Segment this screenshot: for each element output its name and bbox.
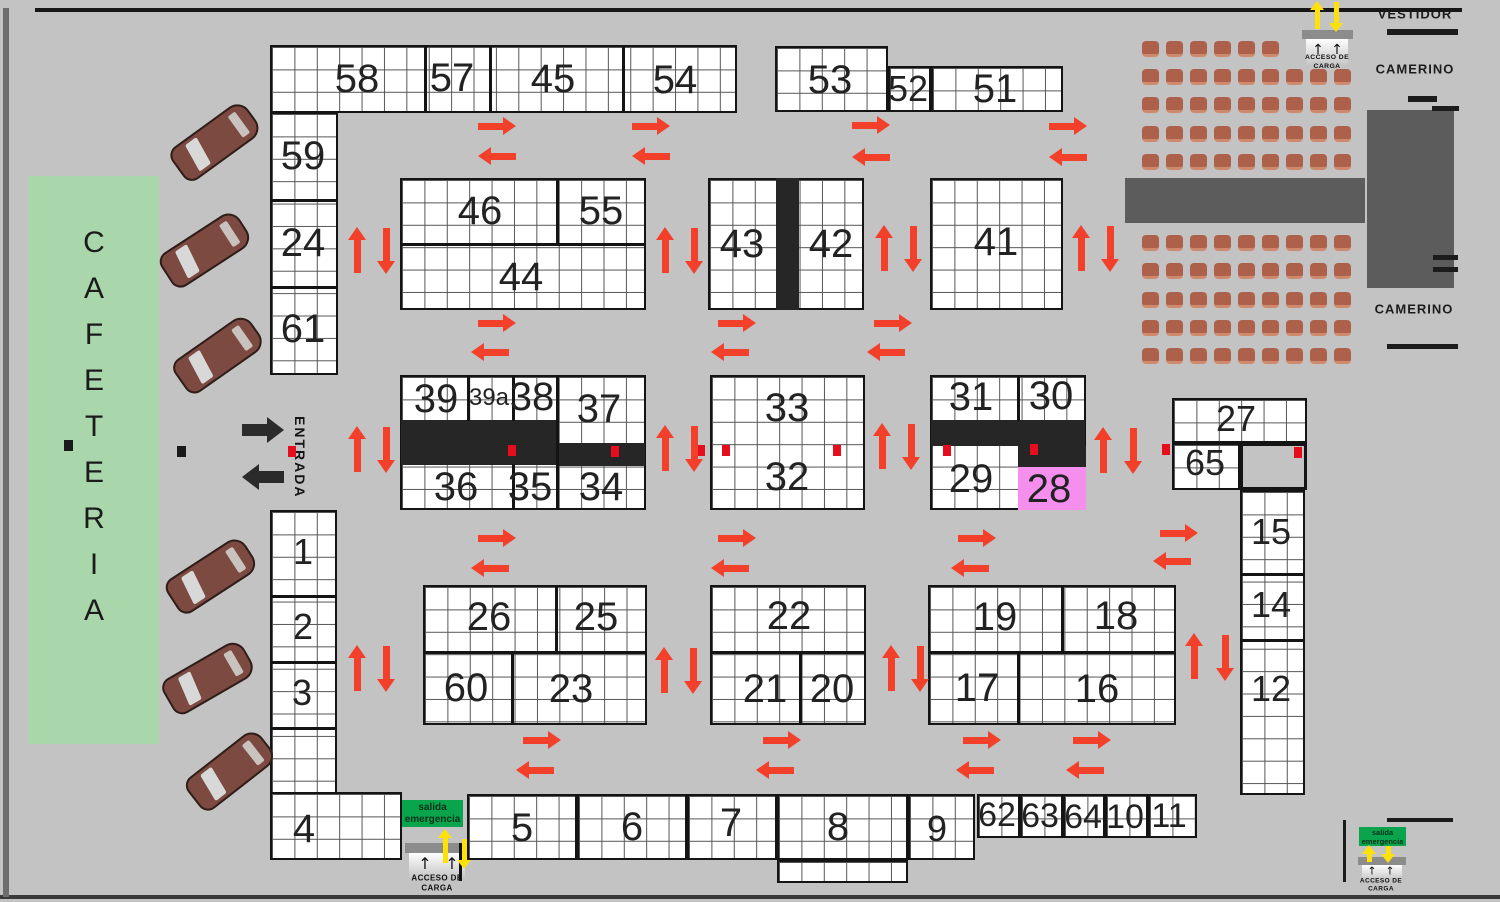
- flow-arrow-down-head: [1101, 259, 1119, 272]
- stall-label-51: 51: [973, 69, 1018, 109]
- stall-divider-line: [270, 286, 338, 289]
- car-windshield: [181, 570, 206, 605]
- flow-arrow-left: [1166, 558, 1191, 565]
- wall-line: [1433, 255, 1458, 260]
- stall-label-3: 3: [292, 675, 312, 711]
- chair-icon: [1334, 97, 1351, 113]
- flow-arrow-down: [1386, 846, 1391, 854]
- flow-arrow-up-head: [873, 423, 891, 436]
- stall-label-19: 19: [973, 597, 1018, 637]
- chair-icon: [1310, 126, 1327, 142]
- chair-icon: [1214, 263, 1231, 279]
- stall-label-32: 32: [765, 457, 810, 497]
- black-marker: [177, 446, 186, 457]
- flow-arrow-down: [1222, 635, 1229, 668]
- flow-arrow-right-head: [877, 116, 890, 134]
- stall-label-27: 27: [1216, 401, 1256, 437]
- chair-icon: [1190, 41, 1207, 57]
- stall-label-57: 57: [430, 58, 475, 98]
- chair-icon: [1262, 292, 1279, 308]
- flow-arrow-down-head: [1381, 854, 1395, 863]
- car-rear-window: [231, 325, 253, 351]
- exhibition-floor-plan: CAFETERIA ENTRADA VESTIDOR CAMERINO CAME…: [0, 0, 1500, 902]
- red-marker: [722, 445, 730, 456]
- flow-arrow-up-head: [348, 645, 366, 658]
- stall-label-21: 21: [743, 669, 788, 709]
- flow-arrow-up-head: [348, 426, 366, 439]
- chair-icon: [1238, 126, 1255, 142]
- chair-icon: [1334, 348, 1351, 364]
- stall-label-6: 6: [621, 807, 643, 847]
- stall-divider-line: [1017, 651, 1020, 725]
- chair-icon: [1214, 154, 1231, 170]
- chair-icon: [1310, 154, 1327, 170]
- wall-line: [1387, 818, 1453, 822]
- car-rear-window: [223, 650, 244, 677]
- flow-arrow-down-head: [1329, 23, 1343, 32]
- stall-label-29: 29: [949, 459, 994, 499]
- flow-arrow-left: [724, 565, 749, 572]
- cafeteria-label: CAFETERIA: [77, 226, 111, 640]
- stall-divider-line: [1240, 573, 1305, 576]
- stall-divider-line: [270, 661, 337, 664]
- stall-divider-line: [511, 651, 514, 725]
- chair-icon: [1190, 154, 1207, 170]
- flow-arrow-down: [383, 228, 390, 261]
- chair-icon: [1166, 154, 1183, 170]
- flow-arrow-right-head: [988, 731, 1001, 749]
- flow-arrow-up: [662, 438, 669, 471]
- stall-label-22: 22: [767, 596, 812, 636]
- chair-icon: [1238, 263, 1255, 279]
- chair-icon: [1262, 154, 1279, 170]
- chair-icon: [1334, 263, 1351, 279]
- flow-arrow-right: [478, 123, 503, 130]
- stall-label-53: 53: [808, 60, 853, 100]
- stall-label-37: 37: [577, 389, 622, 429]
- chair-icon: [1214, 320, 1231, 336]
- flow-arrow-left-head: [471, 559, 484, 577]
- wall-line: [1343, 820, 1346, 882]
- flow-arrow-up: [354, 439, 361, 472]
- chair-icon: [1310, 235, 1327, 251]
- stall-label-35: 35: [508, 467, 553, 507]
- flow-arrow-up-head: [348, 227, 366, 240]
- car-rear-window: [225, 547, 247, 574]
- flow-arrow-up: [1191, 646, 1198, 679]
- red-marker: [508, 445, 516, 456]
- chair-icon: [1286, 235, 1303, 251]
- chair-icon: [1286, 348, 1303, 364]
- chair-icon: [1238, 348, 1255, 364]
- ramp-arrow-icon: ↑: [418, 856, 431, 872]
- flow-arrow-up: [881, 238, 888, 271]
- chair-icon: [1166, 292, 1183, 308]
- flow-arrow-up: [1078, 238, 1085, 271]
- flow-arrow-down-head: [902, 457, 920, 470]
- flow-arrow-up: [888, 658, 895, 691]
- chair-icon: [1262, 97, 1279, 113]
- chair-icon: [1214, 348, 1231, 364]
- chair-icon: [1166, 69, 1183, 85]
- stall-label-36: 36: [434, 467, 479, 507]
- red-marker: [1162, 444, 1170, 455]
- black-wall-bar: [776, 178, 799, 310]
- stall-label-23: 23: [549, 669, 594, 709]
- flow-arrow-down-head: [377, 261, 395, 274]
- stall-label-61: 61: [281, 309, 326, 349]
- stall-label-42: 42: [809, 224, 854, 264]
- stall-label-39a: 39a: [469, 386, 509, 410]
- flow-arrow-up: [354, 658, 361, 691]
- chair-icon: [1190, 126, 1207, 142]
- chair-icon: [1190, 292, 1207, 308]
- stall-divider-line: [556, 375, 559, 510]
- chair-icon: [1238, 154, 1255, 170]
- chair-icon: [1190, 69, 1207, 85]
- stall-label-46: 46: [458, 191, 503, 231]
- flow-arrow-left-head: [852, 148, 865, 166]
- car-windshield: [175, 244, 200, 279]
- chair-icon: [1166, 235, 1183, 251]
- stall-label-12: 12: [1251, 671, 1291, 707]
- flow-arrow-down: [917, 646, 924, 679]
- flow-arrow-right-head: [899, 314, 912, 332]
- flow-arrow-left: [1062, 154, 1087, 161]
- flow-arrow-right: [874, 320, 899, 327]
- stall-label-9: 9: [927, 811, 947, 847]
- flow-arrow-down: [1107, 226, 1114, 259]
- stall-label-64: 64: [1064, 800, 1102, 834]
- chair-icon: [1142, 235, 1159, 251]
- chair-icon: [1166, 263, 1183, 279]
- chair-icon: [1142, 126, 1159, 142]
- loading-access-label: ACCESO DECARGA: [411, 874, 462, 895]
- chair-icon: [1214, 97, 1231, 113]
- stall-label-54: 54: [653, 60, 698, 100]
- stall-label-2: 2: [293, 609, 313, 645]
- parked-car: [169, 312, 267, 398]
- chair-icon: [1334, 292, 1351, 308]
- stall-divider-line: [556, 178, 559, 245]
- exit-sign-line2: emergencia: [402, 814, 463, 826]
- stall-label-14: 14: [1251, 587, 1291, 623]
- car-rear-window: [228, 111, 251, 137]
- flow-arrow-up: [354, 240, 361, 273]
- stall-label-41: 41: [974, 222, 1019, 262]
- wall-line: [1387, 344, 1458, 349]
- chair-icon: [1142, 97, 1159, 113]
- chair-icon: [1238, 69, 1255, 85]
- loading-access-label: ACCESO DECARGA: [1360, 878, 1402, 895]
- flow-arrow-up: [443, 838, 448, 863]
- flow-arrow-right: [718, 320, 743, 327]
- entrance-label: ENTRADA: [292, 416, 308, 498]
- chair-icon: [1166, 320, 1183, 336]
- stall-label-17: 17: [955, 668, 1000, 708]
- chair-icon: [1262, 69, 1279, 85]
- flow-arrow-down-head: [685, 459, 703, 472]
- flow-arrow-down-head: [685, 261, 703, 274]
- chair-icon: [1262, 348, 1279, 364]
- chair-icon: [1166, 97, 1183, 113]
- flow-arrow-left-head: [478, 147, 491, 165]
- red-marker: [697, 445, 705, 456]
- flow-arrow-down-head: [1216, 668, 1234, 681]
- chair-icon: [1214, 126, 1231, 142]
- flow-arrow-left-head: [956, 761, 969, 779]
- wall-line: [3, 8, 9, 897]
- black-wall-bar: [931, 420, 1085, 446]
- stall-label-43: 43: [720, 224, 765, 264]
- red-marker: [1030, 444, 1038, 455]
- flow-arrow-left: [724, 349, 749, 356]
- chair-icon: [1310, 97, 1327, 113]
- flow-arrow-left-head: [516, 761, 529, 779]
- flow-arrow-up: [661, 660, 668, 693]
- flow-arrow-left-head: [711, 343, 724, 361]
- chair-icon: [1310, 320, 1327, 336]
- red-marker: [288, 446, 296, 457]
- black-marker: [64, 440, 73, 451]
- stall-label-28: 28: [1027, 469, 1072, 509]
- black-wall-bar: [401, 420, 557, 465]
- wall-line: [1408, 96, 1437, 102]
- stall-label-33: 33: [765, 388, 810, 428]
- flow-arrow-down: [691, 426, 698, 459]
- flow-arrow-up-head: [1310, 1, 1324, 10]
- chair-icon: [1286, 126, 1303, 142]
- flow-arrow-left: [491, 153, 516, 160]
- chair-icon: [1214, 235, 1231, 251]
- chair-icon: [1286, 263, 1303, 279]
- stall-divider-line: [1017, 375, 1020, 421]
- stall-divider-line: [423, 651, 647, 654]
- flow-arrow-left: [529, 767, 554, 774]
- flow-arrow-left: [645, 153, 670, 160]
- flow-arrow-left-head: [1153, 552, 1166, 570]
- chair-icon: [1286, 97, 1303, 113]
- stall-label-34: 34: [579, 467, 624, 507]
- stall-label-30: 30: [1029, 376, 1074, 416]
- flow-arrow-right-head: [1185, 524, 1198, 542]
- flow-arrow-left-head: [711, 559, 724, 577]
- chair-icon: [1142, 69, 1159, 85]
- stall-label-11: 11: [1151, 799, 1186, 833]
- flow-arrow-left: [865, 154, 890, 161]
- flow-arrow-down: [1130, 428, 1137, 461]
- chair-icon: [1238, 292, 1255, 308]
- wall-line: [1432, 106, 1459, 111]
- flow-arrow-right: [1160, 530, 1185, 537]
- red-marker: [1294, 447, 1302, 458]
- cafeteria-area: CAFETERIA: [28, 176, 159, 744]
- chair-icon: [1190, 235, 1207, 251]
- stall-divider-line: [928, 651, 1176, 654]
- parked-car: [166, 99, 264, 185]
- parked-car: [158, 638, 258, 719]
- flow-arrow-left-head: [756, 761, 769, 779]
- stall-label-7: 7: [720, 803, 742, 843]
- red-marker: [943, 445, 951, 456]
- flow-arrow-up-head: [1094, 427, 1112, 440]
- stall-block: [777, 860, 908, 883]
- stall-divider-line: [270, 595, 337, 598]
- flow-arrow-up-head: [1362, 845, 1376, 854]
- wall-line: [1433, 267, 1458, 272]
- emergency-exit-sign-left: salida emergencia: [402, 800, 463, 827]
- chair-icon: [1262, 41, 1279, 57]
- stall-block: [270, 792, 402, 860]
- flow-arrow-right: [632, 123, 657, 130]
- stall-divider-line: [799, 651, 802, 725]
- flow-arrow-right-head: [788, 731, 801, 749]
- chair-icon: [1310, 348, 1327, 364]
- flow-arrow-right: [478, 320, 503, 327]
- flow-arrow-down-head: [377, 460, 395, 473]
- stall-label-44: 44: [499, 257, 544, 297]
- chair-icon: [1166, 41, 1183, 57]
- flow-arrow-left-head: [632, 147, 645, 165]
- parked-car: [162, 534, 261, 618]
- stall-label-25: 25: [574, 597, 619, 637]
- chair-icon: [1334, 235, 1351, 251]
- stall-label-58: 58: [335, 59, 380, 99]
- flow-arrow-left: [969, 767, 994, 774]
- chair-icon: [1262, 320, 1279, 336]
- exit-sign-line1: salida: [1359, 828, 1406, 837]
- stall-label-60: 60: [444, 668, 489, 708]
- flow-arrow-down: [690, 648, 697, 681]
- stall-divider-line: [489, 45, 492, 113]
- ramp-arrow-icon: ↑: [1367, 866, 1376, 877]
- chair-icon: [1286, 69, 1303, 85]
- flow-arrow-up-head: [655, 647, 673, 660]
- flow-arrow-right-head: [503, 529, 516, 547]
- flow-arrow-right: [242, 424, 267, 436]
- chair-icon: [1310, 69, 1327, 85]
- stall-divider-line: [424, 45, 427, 113]
- stall-divider-line: [270, 727, 337, 730]
- flow-arrow-up: [1315, 10, 1320, 29]
- stall-label-8: 8: [827, 807, 849, 847]
- flow-arrow-right-head: [1098, 731, 1111, 749]
- stall-label-39: 39: [414, 379, 459, 419]
- chair-icon: [1190, 263, 1207, 279]
- chair-icon: [1190, 320, 1207, 336]
- flow-arrow-right-head: [743, 314, 756, 332]
- flow-arrow-down: [910, 226, 917, 259]
- chair-icon: [1214, 69, 1231, 85]
- stall-label-24: 24: [281, 223, 326, 263]
- flow-arrow-left: [964, 565, 989, 572]
- wall-line: [1387, 29, 1458, 35]
- flow-arrow-left: [484, 565, 509, 572]
- chair-icon: [1310, 263, 1327, 279]
- flow-arrow-down: [908, 424, 915, 457]
- flow-arrow-left: [259, 471, 284, 483]
- flow-arrow-left-head: [242, 464, 259, 490]
- flow-arrow-down-head: [684, 681, 702, 694]
- flow-arrow-left-head: [1066, 761, 1079, 779]
- chair-icon: [1238, 41, 1255, 57]
- chair-icon: [1262, 126, 1279, 142]
- flow-arrow-left: [880, 349, 905, 356]
- flow-arrow-up-head: [656, 227, 674, 240]
- car-rear-window: [242, 740, 265, 766]
- stall-divider-line: [710, 651, 866, 654]
- flow-arrow-right: [523, 737, 548, 744]
- stage-block: [1367, 110, 1454, 288]
- flow-arrow-up-head: [1072, 225, 1090, 238]
- red-marker: [611, 446, 619, 457]
- flow-arrow-up: [1100, 440, 1107, 473]
- flow-arrow-right: [958, 535, 983, 542]
- flow-arrow-right-head: [548, 731, 561, 749]
- stall-label-15: 15: [1251, 514, 1291, 550]
- chair-icon: [1142, 348, 1159, 364]
- stall-label-65: 65: [1185, 445, 1225, 481]
- stall-label-31: 31: [949, 377, 994, 417]
- black-wall-bar: [557, 443, 645, 466]
- chair-icon: [1334, 154, 1351, 170]
- stage-block: [1125, 178, 1365, 223]
- flow-arrow-up: [662, 240, 669, 273]
- chair-icon: [1286, 154, 1303, 170]
- red-marker: [833, 445, 841, 456]
- flow-arrow-down: [1334, 2, 1339, 23]
- stall-label-62: 62: [978, 798, 1016, 832]
- flow-arrow-left: [1079, 767, 1104, 774]
- flow-arrow-up-head: [882, 645, 900, 658]
- chair-icon: [1238, 97, 1255, 113]
- car-windshield: [200, 767, 227, 802]
- flow-arrow-up-head: [875, 225, 893, 238]
- flow-arrow-down-head: [1124, 461, 1142, 474]
- stall-divider-line: [555, 585, 558, 652]
- chair-icon: [1286, 320, 1303, 336]
- black-wall-bar: [1018, 446, 1086, 467]
- flow-arrow-right: [478, 535, 503, 542]
- chair-icon: [1190, 348, 1207, 364]
- chair-icon: [1214, 41, 1231, 57]
- stall-divider-line: [1061, 585, 1064, 652]
- flow-arrow-up-head: [438, 829, 452, 838]
- chair-icon: [1166, 126, 1183, 142]
- flow-arrow-left-head: [1049, 148, 1062, 166]
- stall-label-5: 5: [511, 808, 533, 848]
- flow-arrow-left: [769, 767, 794, 774]
- stall-label-59: 59: [281, 136, 326, 176]
- camerino-bottom-label: CAMERINO: [1375, 302, 1454, 317]
- stall-label-52: 52: [888, 71, 928, 107]
- stall-label-20: 20: [810, 669, 855, 709]
- chair-icon: [1142, 292, 1159, 308]
- flow-arrow-right-head: [503, 117, 516, 135]
- chair-icon: [1334, 320, 1351, 336]
- flow-arrow-right: [718, 535, 743, 542]
- camerino-top-label: CAMERINO: [1376, 62, 1455, 77]
- chair-icon: [1334, 69, 1351, 85]
- flow-arrow-down-head: [911, 679, 929, 692]
- flow-arrow-right-head: [983, 529, 996, 547]
- flow-arrow-up-head: [656, 425, 674, 438]
- chair-icon: [1214, 292, 1231, 308]
- chair-icon: [1142, 154, 1159, 170]
- stall-label-1: 1: [293, 534, 313, 570]
- stall-label-26: 26: [467, 597, 512, 637]
- flow-arrow-right-head: [503, 314, 516, 332]
